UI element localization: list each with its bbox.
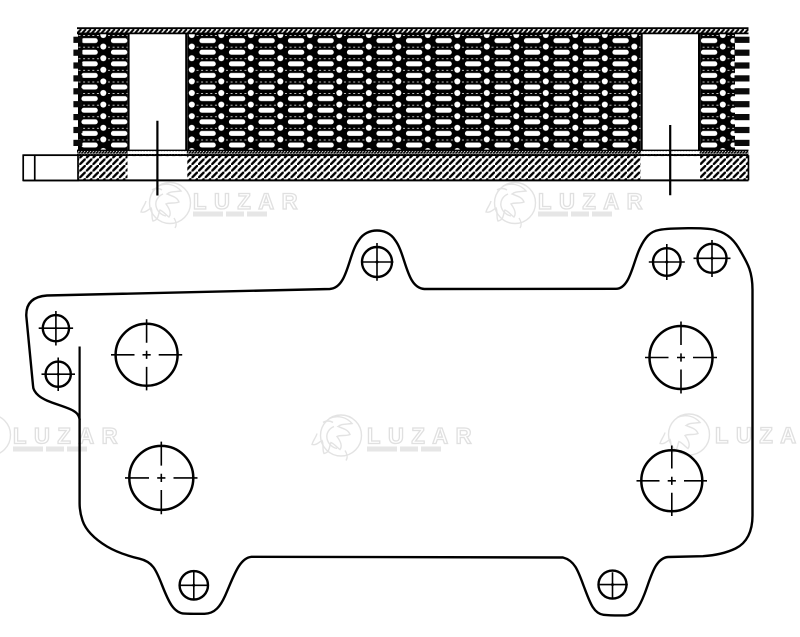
svg-text:LUZAR: LUZAR [715,423,800,448]
svg-text:LUZAR: LUZAR [367,424,479,449]
svg-text:LUZAR: LUZAR [193,189,305,214]
svg-text:LUZAR: LUZAR [538,189,650,214]
svg-text:LUZAR: LUZAR [13,424,125,449]
